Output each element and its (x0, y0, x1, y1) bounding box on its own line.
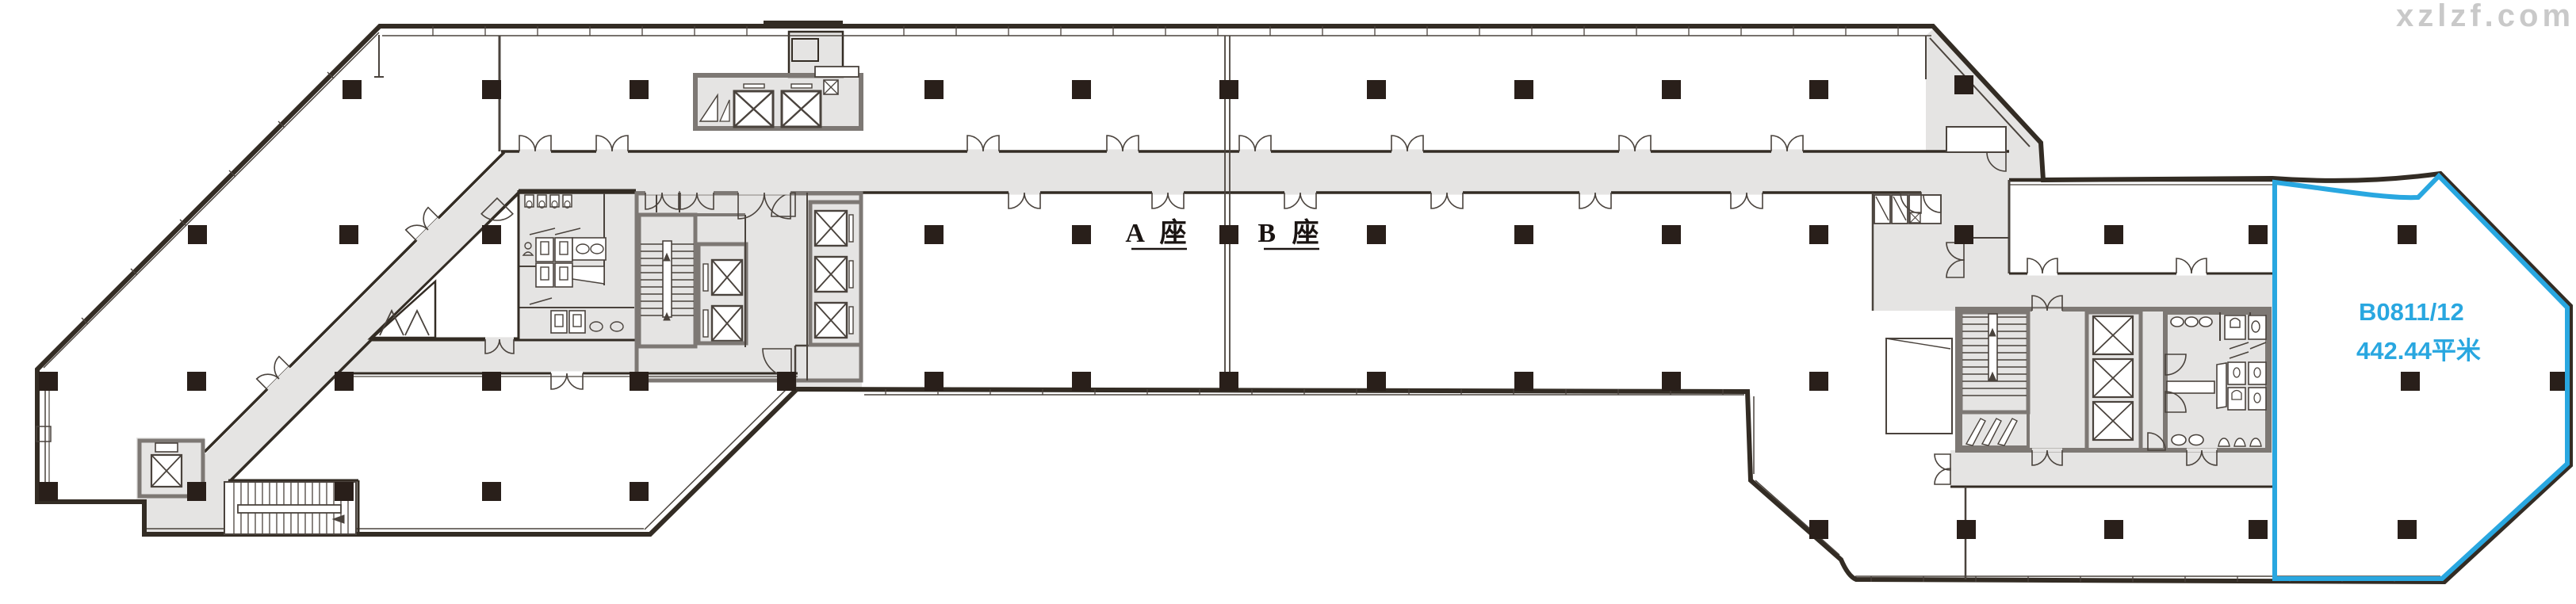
svg-text:xzlzf.com: xzlzf.com (2396, 0, 2574, 33)
svg-text:A 座: A 座 (1125, 218, 1191, 248)
svg-text:B0811/12: B0811/12 (2359, 298, 2464, 326)
svg-text:B 座: B 座 (1257, 218, 1323, 248)
svg-text:442.44平米: 442.44平米 (2356, 337, 2481, 365)
